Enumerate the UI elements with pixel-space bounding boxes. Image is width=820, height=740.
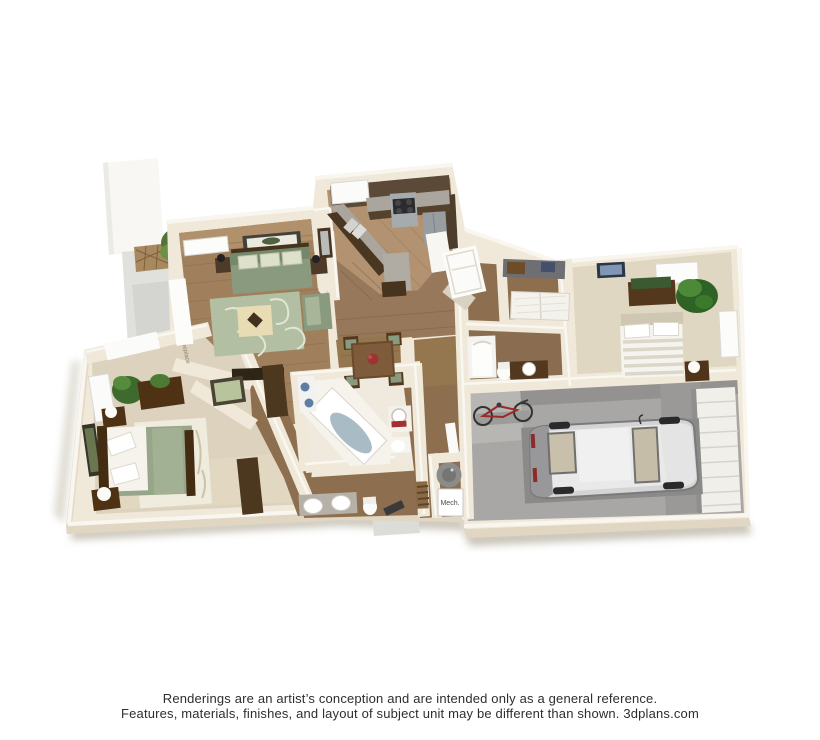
svg-text:Mech.: Mech. <box>440 500 459 507</box>
